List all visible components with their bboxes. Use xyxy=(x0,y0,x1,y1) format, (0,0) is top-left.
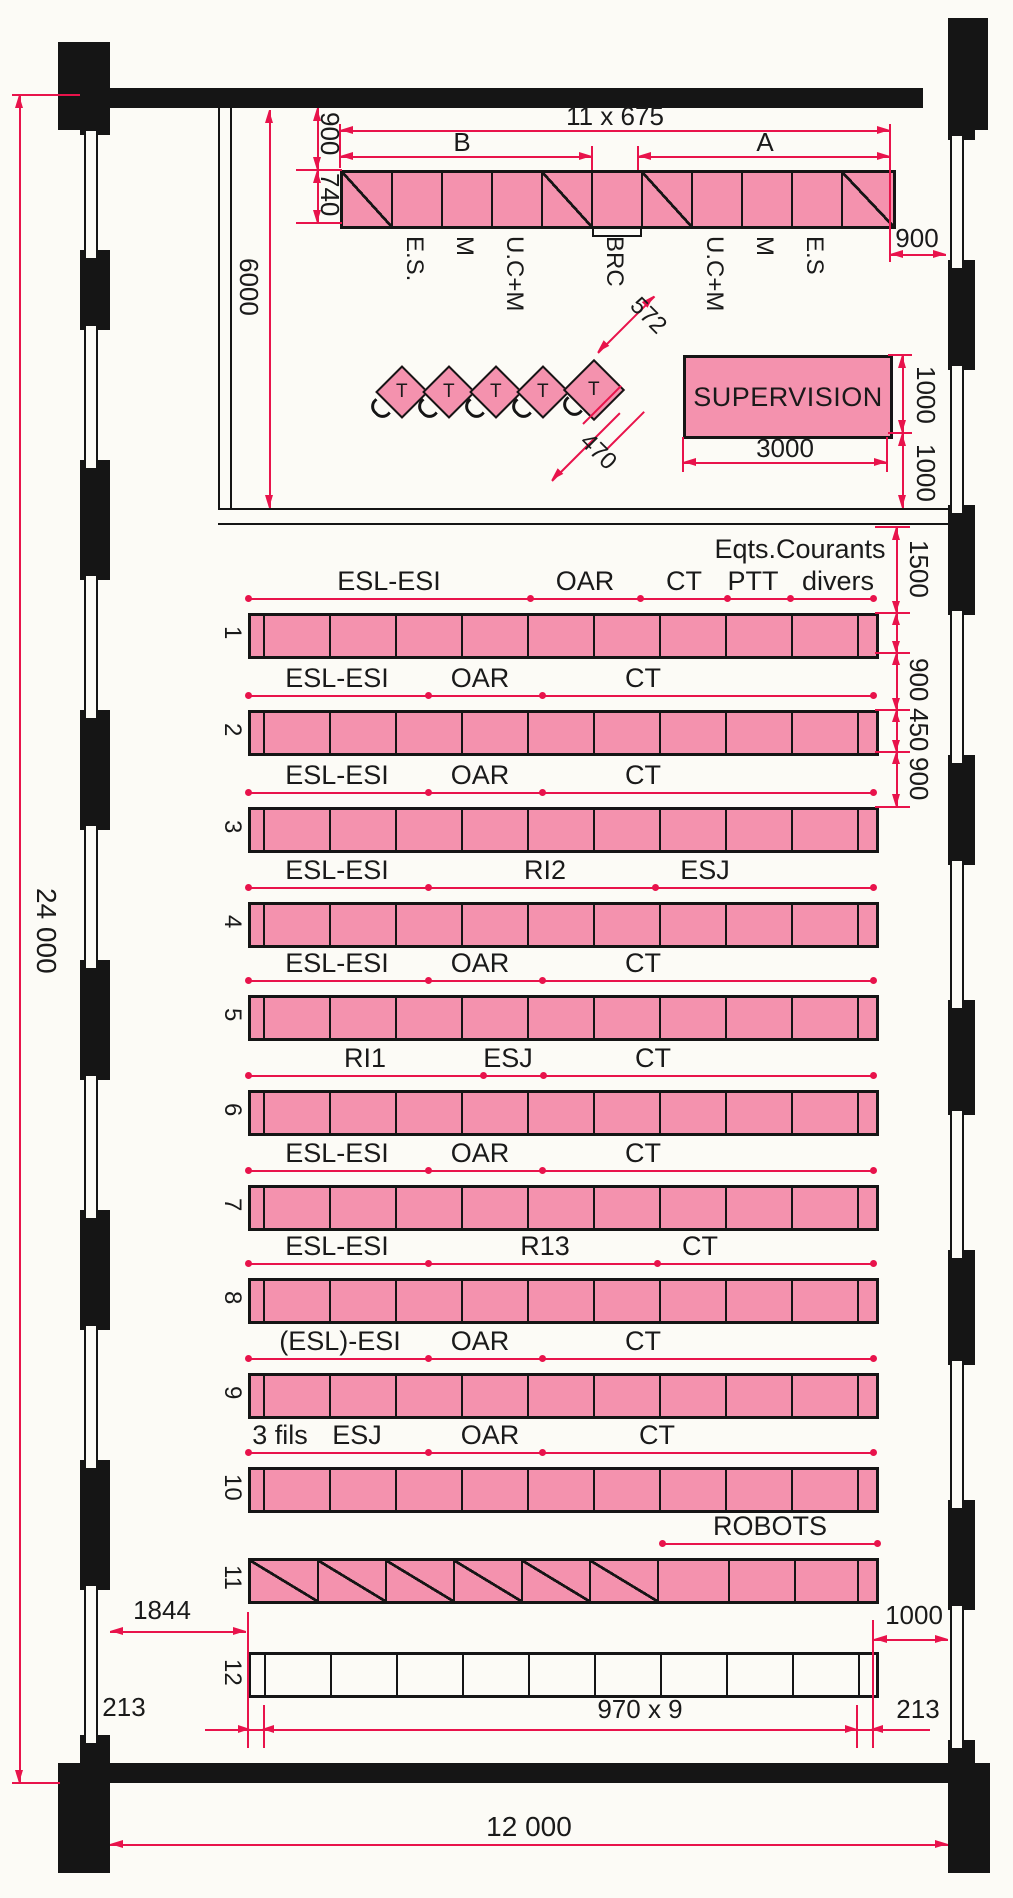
dim-dot xyxy=(870,1355,877,1362)
row-cell xyxy=(265,1376,331,1416)
row-cell xyxy=(661,713,727,753)
equipment-row-bar-7 xyxy=(248,1185,879,1231)
ext xyxy=(889,124,891,262)
row-cell xyxy=(859,616,876,656)
dim-arrow xyxy=(892,641,900,653)
dim-label: 6000 xyxy=(233,258,264,316)
row-cell xyxy=(265,998,331,1038)
row-cell xyxy=(251,1561,319,1601)
row-cell xyxy=(859,1281,876,1321)
equipment-row-bar-11 xyxy=(248,1558,879,1604)
row-cell xyxy=(661,1470,727,1510)
dim-label: 900 xyxy=(903,757,934,800)
row-cell xyxy=(595,1376,661,1416)
row-cell xyxy=(529,905,595,945)
row-cell xyxy=(397,616,463,656)
row-label: CT xyxy=(625,1138,661,1169)
dim-dot xyxy=(870,977,877,984)
row-label: ESL-ESI xyxy=(285,948,389,979)
dim-label: 572 xyxy=(624,292,672,340)
window-pane xyxy=(84,1324,98,1470)
row-cell xyxy=(265,1093,331,1133)
dim-label: 1500 xyxy=(903,540,934,598)
dim-arrow xyxy=(892,653,900,665)
dim-dot xyxy=(425,1260,432,1267)
dim-dot xyxy=(870,884,877,891)
row-cell xyxy=(727,1376,793,1416)
row-cell xyxy=(661,905,727,945)
dim-1000-a xyxy=(902,355,904,433)
row-cell xyxy=(319,1561,387,1601)
row-cell xyxy=(859,1188,876,1228)
row-cell xyxy=(463,1376,529,1416)
corner-column-top-right xyxy=(948,18,988,130)
dim-dot xyxy=(654,1260,661,1267)
row-label: ESL-ESI xyxy=(337,566,441,597)
row-label: OAR xyxy=(461,1420,520,1451)
row-cell xyxy=(331,1188,397,1228)
row-cell xyxy=(463,810,529,850)
row-cell xyxy=(529,1470,595,1510)
dim-dot xyxy=(870,789,877,796)
row-group-dim-line xyxy=(248,695,873,697)
outer-wall-bottom xyxy=(80,1763,975,1783)
row-label: ESL-ESI xyxy=(285,1231,389,1262)
dim-label: 1000 xyxy=(910,444,941,502)
row-cell xyxy=(859,810,876,850)
row-label: OAR xyxy=(556,566,615,597)
row-cell xyxy=(727,1188,793,1228)
terminal-label: T xyxy=(443,381,455,403)
dim-label: 1844 xyxy=(133,1595,191,1626)
row-cell xyxy=(859,713,876,753)
row-group-dim-line xyxy=(662,1543,877,1545)
window-pane xyxy=(950,1604,964,1750)
row-label: 3 fils xyxy=(252,1420,308,1451)
row-label: CT xyxy=(639,1420,675,1451)
row-label: R13 xyxy=(520,1231,570,1262)
row-number: 3 xyxy=(218,820,246,833)
row-group-dim-line xyxy=(248,1452,873,1454)
row-cell xyxy=(859,1093,876,1133)
dim-dot xyxy=(245,1355,252,1362)
row-label: ESJ xyxy=(680,855,730,886)
row-cell xyxy=(265,905,331,945)
equipment-cell xyxy=(693,173,743,226)
row-cell xyxy=(397,1376,463,1416)
dim-arrow xyxy=(892,601,900,613)
row-cell xyxy=(859,1561,876,1601)
dim-dot xyxy=(539,977,546,984)
row-cell xyxy=(596,1655,662,1695)
supervision-box: SUPERVISION xyxy=(683,355,893,439)
row-cell xyxy=(727,1281,793,1321)
row-label: ESJ xyxy=(483,1043,533,1074)
dim-label: 213 xyxy=(102,1692,145,1723)
row-cell xyxy=(793,1093,859,1133)
row-cell xyxy=(397,1093,463,1133)
row-cell xyxy=(793,1376,859,1416)
window-pane xyxy=(950,134,964,270)
row-label: ROBOTS xyxy=(713,1511,827,1542)
row-cell xyxy=(661,616,727,656)
row-cell xyxy=(331,1281,397,1321)
row-cell xyxy=(463,998,529,1038)
row-cell xyxy=(265,616,331,656)
dim-1000-bottom xyxy=(874,1639,948,1641)
dim-dot xyxy=(245,692,252,699)
row-label: divers xyxy=(802,566,874,597)
row-cell xyxy=(331,905,397,945)
dim-dot xyxy=(245,1449,252,1456)
equipment-row-bar-8 xyxy=(248,1278,879,1324)
dim-label: 1000 xyxy=(885,1600,943,1631)
row-cell xyxy=(793,810,859,850)
dim-dot xyxy=(539,789,546,796)
row-group-dim-line xyxy=(248,980,873,982)
window-pane xyxy=(84,1074,98,1220)
row-cell xyxy=(332,1655,398,1695)
top-unit-label: E.S. xyxy=(400,236,428,281)
dim-label: 1000 xyxy=(910,366,941,424)
row-label: ESL-ESI xyxy=(285,760,389,791)
dim-dot xyxy=(425,977,432,984)
equipment-cell xyxy=(793,173,843,226)
dim-arrow xyxy=(845,1725,857,1733)
equipment-row-bar-12 xyxy=(248,1652,879,1698)
row-label: CT xyxy=(625,760,661,791)
dim-dot xyxy=(652,884,659,891)
corner-column-bottom-right xyxy=(948,1763,990,1873)
dim-label: 12 000 xyxy=(486,1811,572,1843)
row-cell xyxy=(793,1281,859,1321)
window-pane xyxy=(84,324,98,470)
row-cell xyxy=(727,713,793,753)
dim-label: 450 xyxy=(903,708,934,751)
dim-dot xyxy=(870,1072,877,1079)
equipment-cell xyxy=(443,173,493,226)
row-cell xyxy=(331,1376,397,1416)
row-cell xyxy=(793,905,859,945)
dim-arrow xyxy=(262,1725,274,1733)
dim-dot xyxy=(870,1260,877,1267)
row-cell xyxy=(398,1655,464,1695)
floor-plan: E.S.MU.C+MBRCU.C+MME.STTTTTSUPERVISION1E… xyxy=(0,0,1013,1898)
top-unit-label: M xyxy=(750,236,778,256)
dim-dot xyxy=(539,692,546,699)
row-cell xyxy=(595,1188,661,1228)
dim-label: 3000 xyxy=(756,433,814,464)
row-cell xyxy=(530,1655,596,1695)
row-cell xyxy=(595,1470,661,1510)
row-cell xyxy=(727,810,793,850)
ext xyxy=(886,437,888,472)
row-cell xyxy=(331,616,397,656)
row-cell xyxy=(265,810,331,850)
dim-dot xyxy=(870,692,877,699)
dim-arrow xyxy=(892,740,900,752)
dim-dot xyxy=(245,977,252,984)
row-cell xyxy=(730,1561,796,1601)
dim-12000 xyxy=(110,1844,948,1846)
row-label: ESL-ESI xyxy=(285,855,389,886)
dim-dot xyxy=(245,789,252,796)
dim-dot xyxy=(870,1449,877,1456)
row-number: 7 xyxy=(218,1198,246,1211)
dim-label: B xyxy=(453,127,470,158)
row-cell xyxy=(529,616,595,656)
dim-dot xyxy=(245,1167,252,1174)
row-cell xyxy=(595,713,661,753)
row-cell xyxy=(793,998,859,1038)
row-cell xyxy=(529,1188,595,1228)
row-cell xyxy=(455,1561,523,1601)
dim-dot xyxy=(245,884,252,891)
row-label: CT xyxy=(625,948,661,979)
row-cell xyxy=(793,616,859,656)
row-cell xyxy=(397,998,463,1038)
dim-dot xyxy=(245,595,252,602)
row-cell xyxy=(529,1281,595,1321)
row-number: 9 xyxy=(218,1386,246,1399)
dim-arrow xyxy=(238,1725,250,1733)
row-label: RI1 xyxy=(344,1043,386,1074)
row-cell xyxy=(397,1188,463,1228)
dim-dot xyxy=(425,1355,432,1362)
row-cell xyxy=(661,1188,727,1228)
row-cell xyxy=(331,713,397,753)
supervision-label: SUPERVISION xyxy=(693,382,883,413)
dim-dot xyxy=(659,1540,666,1547)
row-cell xyxy=(397,1281,463,1321)
row-cell xyxy=(595,616,661,656)
row-group-dim-line xyxy=(248,887,873,889)
row-cell xyxy=(251,810,265,850)
row-number: 4 xyxy=(218,915,246,928)
equipment-cell-diagonal xyxy=(543,173,593,226)
dim-label: A xyxy=(756,127,773,158)
dim-900-right xyxy=(890,254,946,256)
equipment-row-bar-1 xyxy=(248,613,879,659)
dim-label: 11 x 675 xyxy=(566,101,664,132)
dim-label: 213 xyxy=(896,1694,939,1725)
dim-dot xyxy=(425,789,432,796)
row-cell xyxy=(251,905,265,945)
row-cell xyxy=(387,1561,455,1601)
row-cell xyxy=(331,998,397,1038)
row-cell xyxy=(793,1470,859,1510)
row-cell xyxy=(661,810,727,850)
equipment-cell-diagonal xyxy=(643,173,693,226)
dim-arrow xyxy=(892,698,900,710)
corner-column-top-left xyxy=(58,42,110,130)
terminal-label: T xyxy=(490,381,502,403)
row-label: (ESL)-ESI xyxy=(279,1326,401,1357)
row-cell xyxy=(251,1188,265,1228)
dim-dot xyxy=(539,1449,546,1456)
row-label: CT xyxy=(625,663,661,694)
dim-1000-b xyxy=(902,433,904,508)
row-label: OAR xyxy=(451,1326,510,1357)
dim-dot xyxy=(539,1355,546,1362)
dim-dot xyxy=(425,692,432,699)
dim-label: 970 x 9 xyxy=(597,1694,682,1725)
row-cell xyxy=(796,1561,859,1601)
row-cell xyxy=(591,1561,659,1601)
top-unit-label: E.S xyxy=(800,236,828,275)
equipment-row-bar-10 xyxy=(248,1467,879,1513)
row-cell xyxy=(859,998,876,1038)
dim-dot xyxy=(425,884,432,891)
row-cell xyxy=(463,713,529,753)
dim-dot xyxy=(637,595,644,602)
row-number: 2 xyxy=(218,723,246,736)
row-number: 11 xyxy=(218,1565,246,1590)
row-cell xyxy=(265,1470,331,1510)
row-group-dim-line xyxy=(248,1263,873,1265)
dim-label: 900 xyxy=(903,658,934,701)
top-unit-label: U.C+M xyxy=(700,236,728,311)
row-cell xyxy=(251,713,265,753)
row-cell xyxy=(464,1655,530,1695)
row-cell xyxy=(331,1093,397,1133)
row-cell xyxy=(727,1093,793,1133)
top-unit-label: BRC xyxy=(600,236,628,287)
window-pane xyxy=(84,1584,98,1745)
row-cell xyxy=(793,1188,859,1228)
row-label: ESL-ESI xyxy=(285,1138,389,1169)
row-group-dim-line xyxy=(248,1170,873,1172)
row-cell xyxy=(251,1655,266,1695)
dim-label: 470 xyxy=(574,428,622,476)
row-number: 5 xyxy=(218,1008,246,1021)
ext xyxy=(637,146,639,170)
row-cell xyxy=(463,1281,529,1321)
row-cell xyxy=(595,1281,661,1321)
dim-label: 740 xyxy=(314,173,345,216)
row-cell xyxy=(595,905,661,945)
row-cell xyxy=(397,1470,463,1510)
row-cell xyxy=(595,998,661,1038)
row-cell xyxy=(659,1561,730,1601)
row-number: 1 xyxy=(218,626,246,639)
dim-dot xyxy=(787,595,794,602)
row-group-dim-line xyxy=(248,598,873,600)
row-cell xyxy=(463,1093,529,1133)
dim-arrow xyxy=(892,752,900,764)
equipment-row-bar-4 xyxy=(248,902,879,948)
dim-dot xyxy=(527,595,534,602)
row-cell xyxy=(727,1470,793,1510)
window-pane xyxy=(950,1109,964,1260)
corner-column-bottom-left xyxy=(58,1763,110,1873)
row-cell xyxy=(529,713,595,753)
dim-dot xyxy=(874,1540,881,1547)
dim-label: 900 xyxy=(895,223,938,254)
row-cell xyxy=(661,1281,727,1321)
row-label: OAR xyxy=(451,663,510,694)
equipment-row-bar-6 xyxy=(248,1090,879,1136)
row-cell xyxy=(529,1093,595,1133)
row-cell xyxy=(331,1470,397,1510)
row-label: OAR xyxy=(451,948,510,979)
row-cell xyxy=(529,1376,595,1416)
row-label: CT xyxy=(625,1326,661,1357)
row-cell xyxy=(251,1470,265,1510)
row-cell xyxy=(523,1561,591,1601)
row-cell xyxy=(463,905,529,945)
terminal-label: T xyxy=(588,379,600,401)
row-group-dim-line xyxy=(248,1075,873,1077)
dim-dot xyxy=(870,1167,877,1174)
row-cell xyxy=(859,1470,876,1510)
row-cell xyxy=(463,1188,529,1228)
row-cell xyxy=(251,1281,265,1321)
row-cell xyxy=(793,713,859,753)
row-note: Eqts.Courants xyxy=(714,534,885,565)
terminal-label: T xyxy=(537,381,549,403)
window-pane xyxy=(84,824,98,970)
row-cell xyxy=(265,1281,331,1321)
dim-1844 xyxy=(110,1631,246,1633)
row-label: OAR xyxy=(451,760,510,791)
equipment-cell-diagonal xyxy=(843,173,893,226)
window-pane xyxy=(84,574,98,720)
row-label: OAR xyxy=(451,1138,510,1169)
row-label: CT xyxy=(682,1231,718,1262)
row-group-dim-line xyxy=(248,1358,873,1360)
equipment-cell xyxy=(393,173,443,226)
row-cell xyxy=(397,810,463,850)
row-label: PTT xyxy=(728,566,779,597)
dim-dot xyxy=(245,1072,252,1079)
row-cell xyxy=(727,905,793,945)
window-pane xyxy=(84,129,98,260)
row-cell xyxy=(251,998,265,1038)
row-number: 12 xyxy=(218,1659,246,1686)
dim-dot xyxy=(245,1260,252,1267)
row-cell xyxy=(265,1188,331,1228)
top-unit-label: U.C+M xyxy=(500,236,528,311)
equipment-cell xyxy=(593,173,643,226)
row-cell xyxy=(727,616,793,656)
window-pane xyxy=(950,859,964,1010)
dim-label: 900 xyxy=(314,112,345,155)
row-cell xyxy=(859,905,876,945)
top-equipment-bar xyxy=(340,170,896,229)
equipment-row-bar-3 xyxy=(248,807,879,853)
dim-arrow xyxy=(892,710,900,722)
window-pane xyxy=(950,1359,964,1510)
terminal-label: T xyxy=(396,381,408,403)
row-group-dim-line xyxy=(248,792,873,794)
row-cell xyxy=(661,998,727,1038)
inner-partition-vertical xyxy=(218,108,232,520)
ext xyxy=(682,437,684,472)
dim-dot xyxy=(425,1449,432,1456)
row-label: RI2 xyxy=(524,855,566,886)
row-cell xyxy=(397,905,463,945)
equipment-cell xyxy=(493,173,543,226)
dim-label: 24 000 xyxy=(30,888,62,974)
row-label: CT xyxy=(666,566,702,597)
row-cell xyxy=(794,1655,860,1695)
dim-6000 xyxy=(269,110,271,508)
row-cell xyxy=(728,1655,794,1695)
equipment-row-bar-5 xyxy=(248,995,879,1041)
row-cell xyxy=(397,713,463,753)
row-label: ESJ xyxy=(332,1420,382,1451)
